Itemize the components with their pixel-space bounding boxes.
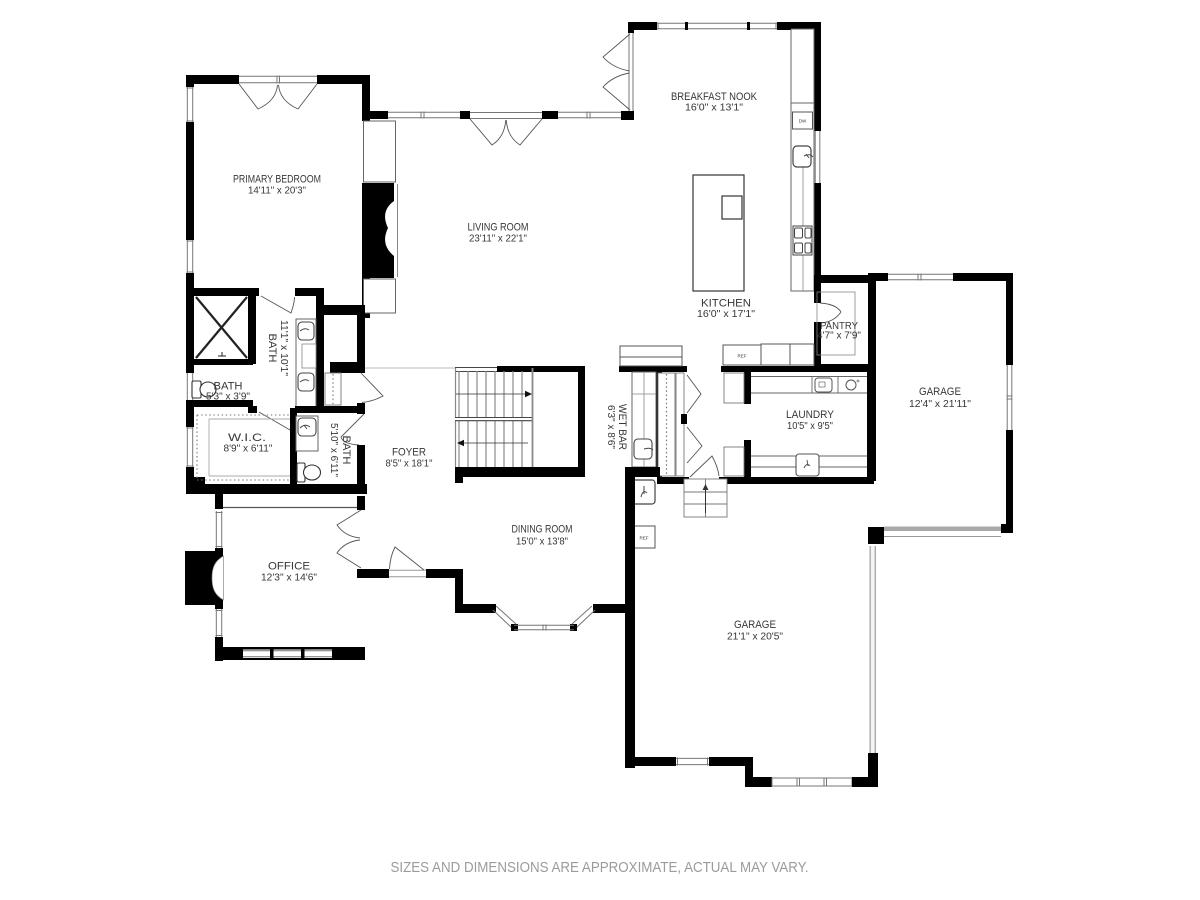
svg-text:REF: REF: [640, 536, 649, 541]
svg-text:11'1" x 10'1": 11'1" x 10'1": [278, 320, 289, 376]
svg-text:BATH: BATH: [266, 334, 278, 363]
svg-text:10'5" x 9'5": 10'5" x 9'5": [787, 421, 833, 432]
svg-text:6'3" x 8'6": 6'3" x 8'6": [605, 405, 616, 449]
svg-text:12'3" x 14'6": 12'3" x 14'6": [261, 573, 317, 584]
svg-text:4'7" x 7'9": 4'7" x 7'9": [817, 331, 861, 342]
svg-text:8'5" x 18'1": 8'5" x 18'1": [386, 459, 433, 470]
svg-text:GARAGE: GARAGE: [919, 386, 961, 398]
svg-text:WET BAR: WET BAR: [616, 404, 628, 450]
svg-text:BREAKFAST NOOK: BREAKFAST NOOK: [671, 91, 758, 103]
svg-text:16'0" x 13'1": 16'0" x 13'1": [685, 103, 743, 114]
svg-text:LIVING ROOM: LIVING ROOM: [468, 222, 529, 234]
svg-text:DINING ROOM: DINING ROOM: [512, 524, 573, 536]
svg-text:SIZES AND DIMENSIONS ARE APPRO: SIZES AND DIMENSIONS ARE APPROXIMATE, AC…: [391, 859, 809, 876]
svg-text:5'10" x 6'11": 5'10" x 6'11": [328, 423, 339, 477]
svg-text:14'11" x 20'3": 14'11" x 20'3": [248, 186, 306, 197]
svg-text:REF: REF: [738, 354, 747, 359]
svg-text:GARAGE: GARAGE: [734, 619, 776, 631]
svg-text:16'0" x 17'1": 16'0" x 17'1": [697, 309, 755, 320]
svg-text:8'9" x 6'11": 8'9" x 6'11": [224, 444, 273, 455]
svg-text:21'1" x 20'5": 21'1" x 20'5": [727, 632, 783, 643]
svg-text:12'4" x 21'11": 12'4" x 21'11": [909, 399, 971, 410]
svg-text:5'3" x 3'9": 5'3" x 3'9": [206, 392, 250, 403]
svg-text:LAUNDRY: LAUNDRY: [786, 409, 835, 421]
svg-text:W.I.C.: W.I.C.: [228, 432, 266, 444]
svg-text:FOYER: FOYER: [392, 447, 426, 459]
svg-text:DW: DW: [799, 119, 807, 124]
svg-text:15'0" x 13'8": 15'0" x 13'8": [516, 537, 568, 548]
svg-text:PRIMARY BEDROOM: PRIMARY BEDROOM: [233, 174, 321, 186]
svg-text:OFFICE: OFFICE: [268, 561, 310, 573]
svg-text:BATH: BATH: [340, 436, 352, 465]
svg-text:23'11" x 22'1": 23'11" x 22'1": [469, 234, 527, 245]
svg-text:KITCHEN: KITCHEN: [701, 298, 751, 310]
